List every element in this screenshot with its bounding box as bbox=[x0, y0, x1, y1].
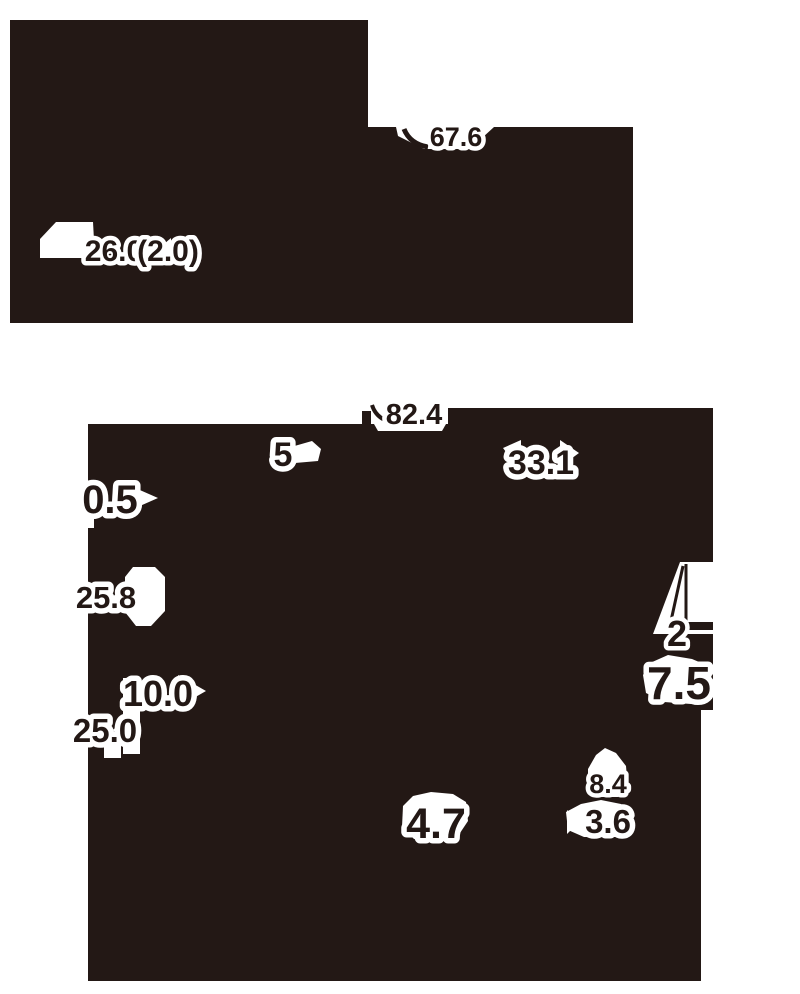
label-25-8: 25.8 bbox=[76, 580, 136, 615]
panel-top-left bbox=[10, 20, 368, 323]
label-3-6: 3.6 bbox=[585, 803, 631, 840]
label-4-7: 4.7 bbox=[406, 800, 466, 848]
label-2-0: (2.0) bbox=[137, 235, 199, 268]
label-2: 2 bbox=[667, 613, 687, 654]
diagram-canvas: 67.6 26.0 (2.0) 82.4 5 33.1 0.5 25.8 10.… bbox=[0, 0, 800, 994]
panel-bottom-top-spike bbox=[362, 411, 371, 424]
label-25-0: 25.0 bbox=[73, 712, 137, 749]
label-67-6: 67.6 bbox=[430, 122, 483, 152]
wedge-2-bar bbox=[688, 622, 713, 630]
panel-top-right bbox=[368, 127, 633, 323]
label-0-5: 0.5 bbox=[82, 478, 138, 522]
label-33-1: 33.1 bbox=[508, 444, 574, 482]
label-82-4: 82.4 bbox=[386, 399, 442, 431]
label-7-5: 7.5 bbox=[647, 657, 711, 709]
label-26-0: 26.0 bbox=[85, 235, 143, 268]
infographic-stage: 67.6 26.0 (2.0) 82.4 5 33.1 0.5 25.8 10.… bbox=[0, 0, 800, 994]
label-5: 5 bbox=[274, 436, 293, 474]
label-10-0: 10.0 bbox=[123, 673, 193, 714]
label-8-4: 8.4 bbox=[589, 769, 627, 799]
